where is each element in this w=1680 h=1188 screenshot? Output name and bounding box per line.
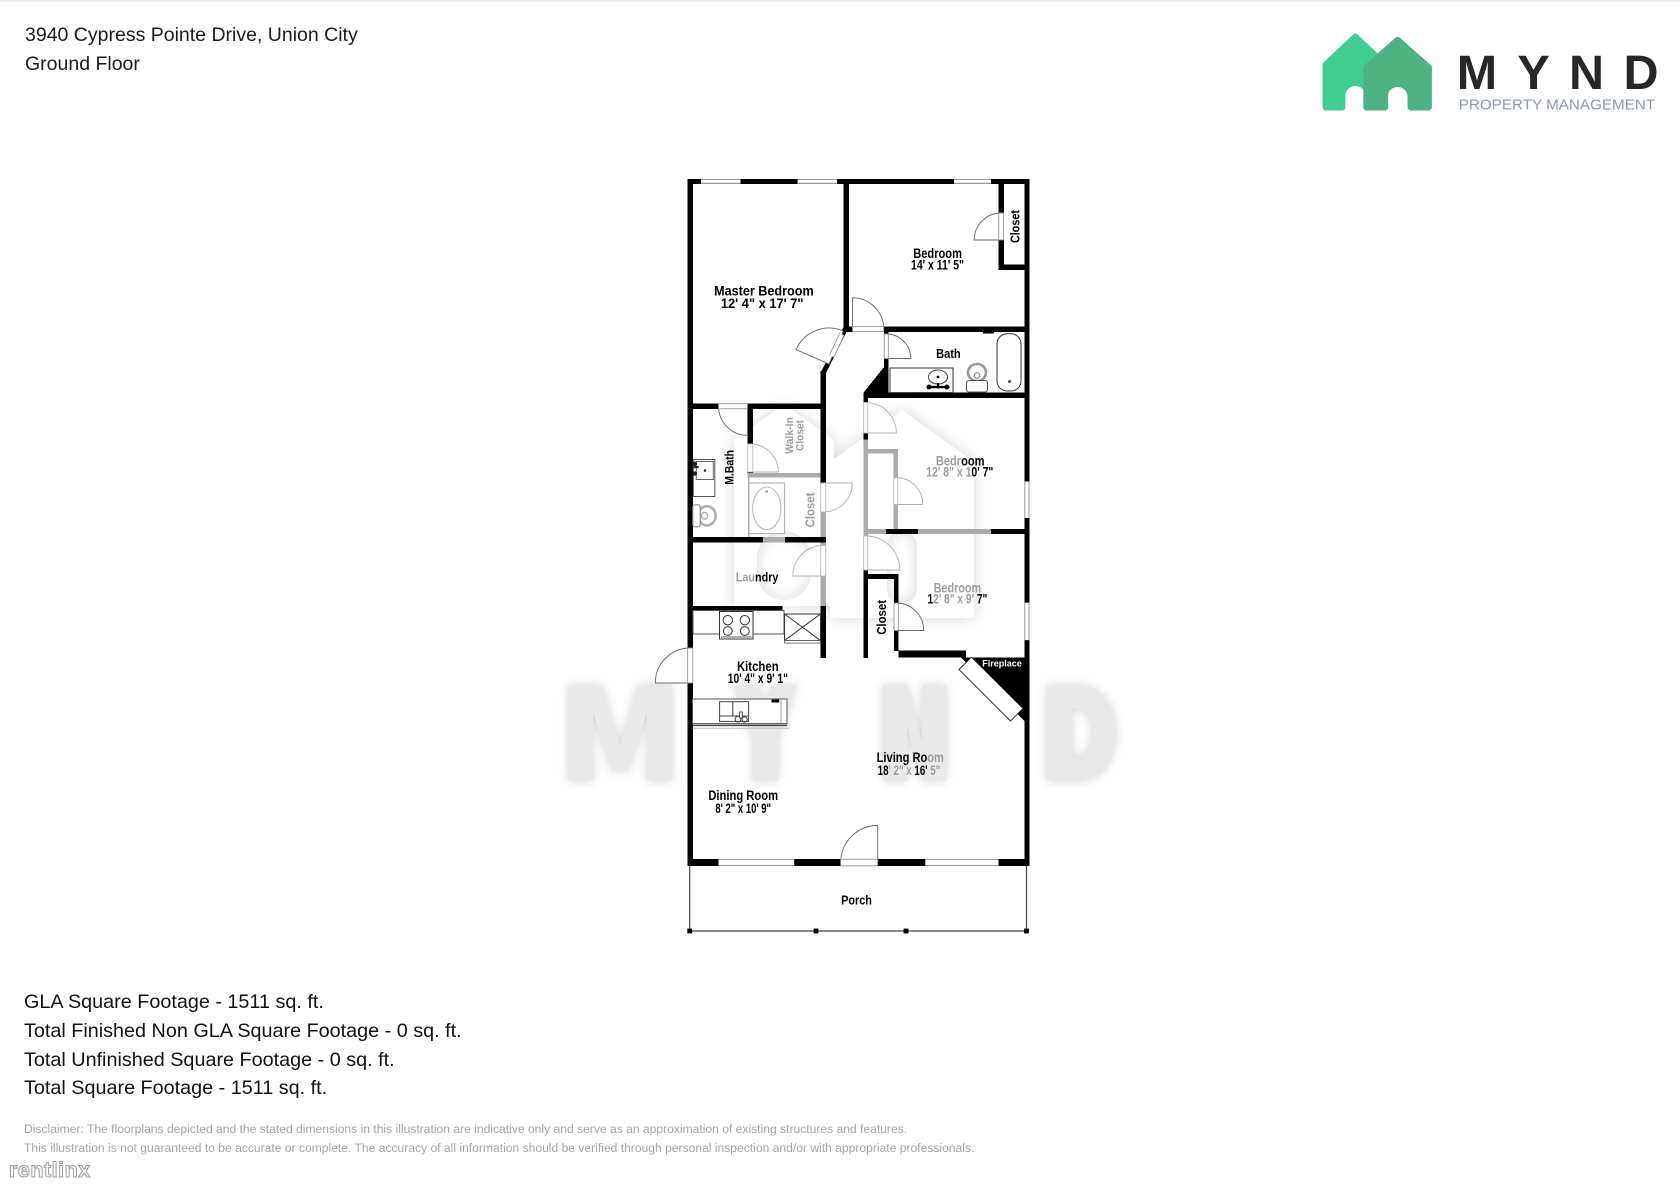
- svg-text:8' 2" x 10' 9": 8' 2" x 10' 9": [715, 801, 771, 816]
- svg-text:12' 8" x 10' 7": 12' 8" x 10' 7": [926, 465, 993, 480]
- svg-text:12' 8" x 9' 7": 12' 8" x 9' 7": [927, 592, 987, 607]
- svg-text:Closet: Closet: [875, 599, 889, 635]
- svg-text:Bath: Bath: [936, 347, 961, 361]
- svg-text:Walk-InCloset: Walk-InCloset: [784, 417, 806, 454]
- svg-text:14' x 11' 5": 14' x 11' 5": [911, 258, 964, 273]
- svg-text:M.Bath: M.Bath: [723, 450, 737, 485]
- svg-text:10' 4" x 9' 1": 10' 4" x 9' 1": [728, 671, 788, 686]
- svg-text:12' 4" x 17' 7": 12' 4" x 17' 7": [721, 296, 804, 311]
- svg-text:Closet: Closet: [804, 492, 818, 528]
- svg-text:Laundry: Laundry: [736, 570, 779, 585]
- svg-text:Fireplace: Fireplace: [982, 659, 1022, 670]
- svg-text:18' 2" x 16' 5": 18' 2" x 16' 5": [878, 763, 941, 778]
- svg-text:Closet: Closet: [1009, 209, 1023, 243]
- svg-text:Porch: Porch: [841, 893, 872, 908]
